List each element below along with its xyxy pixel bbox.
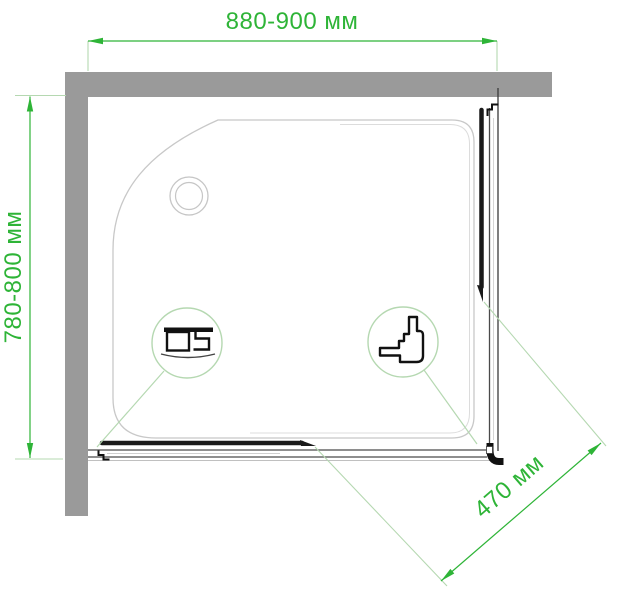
left-callout-circle [152,308,222,378]
dimension-depth: 780-800 мм [0,96,66,460]
detail-callout-right [368,307,477,444]
wall-left [65,72,88,516]
shower-enclosure-diagram: 880-900 мм 780-800 мм 470 мм [0,0,623,600]
width-arrow-left-icon [88,38,103,44]
door-extension-line-right [484,302,606,446]
corner-post [487,443,504,462]
width-arrow-right-icon [482,38,497,44]
depth-arrow-top-icon [27,97,33,112]
drain-inner-circle [176,183,203,210]
bottom-left-wall-bracket [99,451,110,460]
door-extension-line-left [315,447,447,586]
right-door-slide-arrow-icon [477,285,483,302]
depth-arrow-bottom-icon [27,443,33,458]
dimension-door-opening: 470 мм [315,302,606,586]
right-door-assembly [477,88,499,451]
left-callout-leader-line [97,371,164,447]
corner-post-notch [487,447,493,454]
wall-top [65,72,552,97]
tray-outline [113,120,474,438]
dimension-width: 880-900 мм [88,8,497,71]
bottom-door-assembly [88,440,498,461]
detail-callout-left [97,308,222,447]
shower-tray [113,120,474,438]
depth-dimension-label: 780-800 мм [0,211,27,344]
width-dimension-label: 880-900 мм [226,8,359,35]
drawing-canvas: 880-900 мм 780-800 мм 470 мм [0,0,623,600]
